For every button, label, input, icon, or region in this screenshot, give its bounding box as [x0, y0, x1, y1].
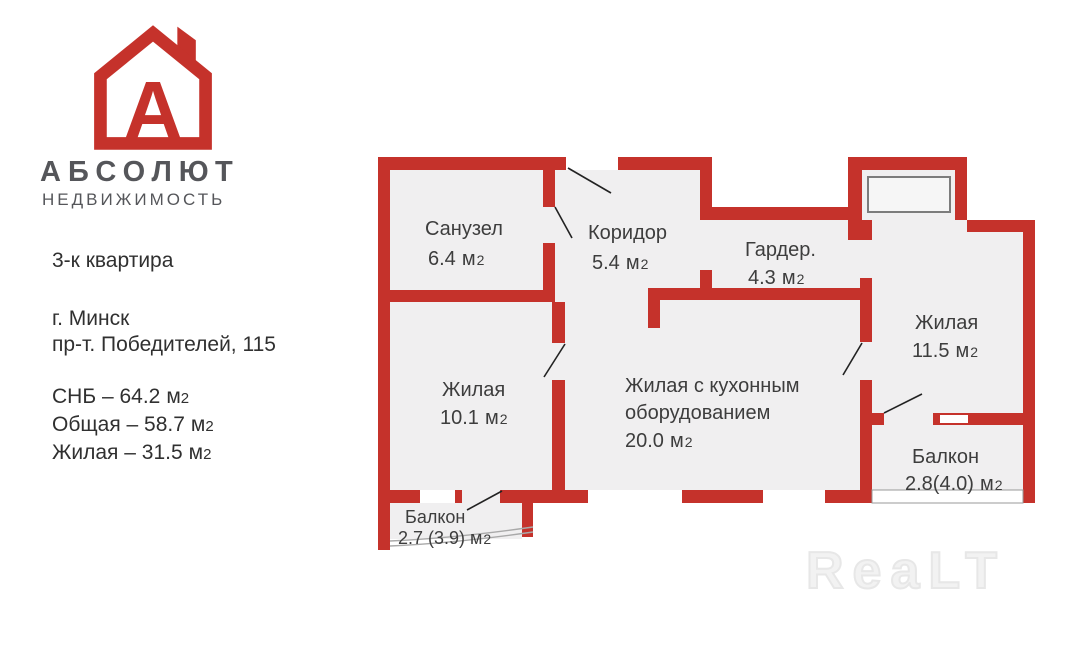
wall-segment — [648, 300, 660, 328]
watermark-realt: ReaLT — [806, 541, 1006, 601]
wall-segment — [378, 290, 555, 302]
wall-segment — [378, 157, 390, 550]
wall-segment — [968, 413, 1023, 425]
window-zhilaya-to-balcony — [940, 415, 968, 423]
room-label-koridor-name: Коридор — [588, 222, 667, 244]
spec-line-zhilaya: Жилая – 31.5м2 — [52, 441, 211, 465]
exterior-notch-above-garder — [712, 157, 848, 207]
room-label-zhilaya-10-1-area: 10.1м2 — [440, 407, 508, 429]
wall-segment — [618, 157, 712, 170]
logo-letter: А — [123, 66, 182, 150]
room-label-kitchen-name-line1: Жилая с кухонным — [625, 375, 799, 397]
wall-segment — [552, 380, 565, 503]
wall-segment — [700, 270, 712, 288]
wall-segment — [455, 490, 462, 503]
spec-text: СНБ – 64.2 — [52, 385, 160, 408]
listing-title: 3-к квартира — [52, 249, 173, 273]
entrance-door-opening — [566, 157, 618, 170]
room-label-zhilaya-11-5-area: 11.5м2 — [912, 340, 978, 362]
spec-line-snb: СНБ – 64.2м2 — [52, 385, 189, 409]
company-logo: А — [80, 20, 226, 150]
unit-m: м — [189, 441, 203, 464]
wall-segment — [825, 490, 860, 503]
unit-sup: 2 — [203, 446, 211, 463]
wall-segment — [860, 380, 872, 503]
wall-segment — [700, 207, 862, 220]
company-subtitle: НЕДВИЖИМОСТЬ — [42, 190, 225, 210]
flyer-canvas: А АБСОЛЮТ НЕДВИЖИМОСТЬ 3-к квартира г. М… — [0, 0, 1080, 657]
wall-segment — [682, 490, 763, 503]
wall-segment — [543, 170, 555, 207]
wall-segment — [848, 157, 967, 170]
company-name: АБСОЛЮТ — [40, 156, 240, 189]
room-label-kitchen-area: 20.0м2 — [625, 430, 693, 452]
wall-segment — [648, 288, 872, 300]
wall-segment — [967, 220, 1035, 232]
balcony-2-7-doorway-fill — [462, 490, 500, 503]
listing-address: пр-т. Победителей, 115 — [52, 333, 276, 357]
room-label-balkon-2-7-name: Балкон — [405, 507, 465, 527]
shaft-box — [868, 177, 950, 212]
wall-segment — [940, 413, 968, 415]
exterior-notch-top-right — [967, 157, 1035, 220]
spec-text: Общая – 58.7 — [52, 413, 185, 436]
unit-m: м — [166, 385, 180, 408]
wall-segment — [860, 278, 872, 342]
listing-city: г. Минск — [52, 307, 129, 331]
wall-segment — [955, 170, 967, 220]
wall-segment — [933, 413, 940, 425]
wall-segment — [552, 302, 565, 343]
room-label-kitchen-name-line2: оборудованием — [625, 402, 770, 424]
room-label-garder-name: Гардер. — [745, 239, 816, 261]
unit-sup: 2 — [205, 418, 213, 435]
unit-m: м — [191, 413, 205, 436]
wall-segment — [862, 220, 872, 240]
room-label-balkon-2-8-name: Балкон — [912, 446, 979, 468]
floor-plan-drawing: Санузел 6.4м2 Коридор 5.4м2 Гардер. 4.3м… — [378, 157, 1035, 557]
wall-segment — [872, 413, 884, 425]
wall-segment — [390, 490, 420, 503]
unit-sup: 2 — [181, 390, 189, 407]
window-kitchen-left — [588, 490, 682, 503]
wall-segment — [940, 423, 968, 425]
wall-segment — [500, 490, 588, 503]
window-zhilaya-10-1 — [420, 490, 455, 503]
room-label-balkon-2-7-area: 2.7 (3.9)м2 — [398, 528, 491, 548]
spec-text: Жилая – 31.5 — [52, 441, 183, 464]
wall-segment — [1023, 232, 1035, 503]
room-label-zhilaya-11-5-name: Жилая — [915, 312, 978, 334]
room-label-zhilaya-10-1-name: Жилая — [442, 379, 505, 401]
room-label-sanuzel-name: Санузел — [425, 218, 503, 240]
spec-line-obshchaya: Общая – 58.7м2 — [52, 413, 214, 437]
window-kitchen-right — [763, 490, 825, 503]
room-label-balkon-2-8-area: 2.8(4.0)м2 — [905, 473, 1003, 495]
wall-segment — [378, 157, 566, 170]
wall-segment — [700, 157, 712, 207]
floor-plan: Санузел 6.4м2 Коридор 5.4м2 Гардер. 4.3м… — [378, 157, 1035, 557]
